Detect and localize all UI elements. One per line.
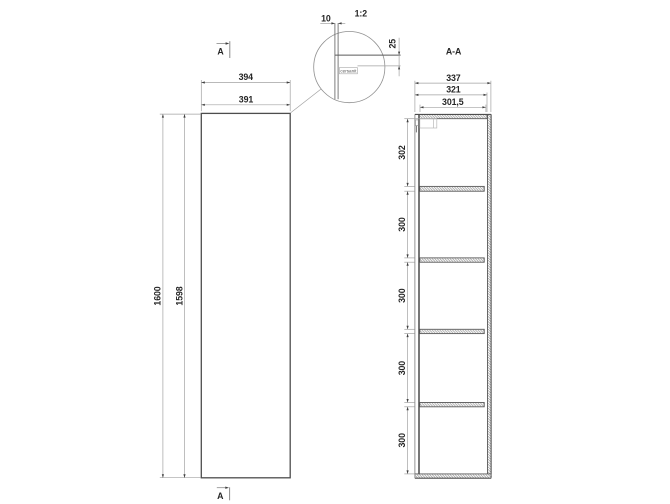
svg-text:321: 321 [446,85,461,95]
svg-text:300: 300 [397,288,407,303]
svg-text:25: 25 [388,39,398,49]
svg-text:A-A: A-A [446,47,462,57]
svg-text:1:2: 1:2 [355,9,368,19]
svg-text:1600: 1600 [153,286,163,305]
svg-text:A: A [217,491,224,501]
svg-text:391: 391 [239,95,254,105]
svg-text:300: 300 [397,361,407,376]
svg-text:394: 394 [239,72,254,82]
svg-text:301,5: 301,5 [442,97,464,107]
svg-text:cersanit: cersanit [340,68,357,73]
svg-text:A: A [217,47,224,57]
svg-text:1598: 1598 [174,286,184,305]
svg-text:10: 10 [321,14,331,24]
svg-text:337: 337 [446,73,461,83]
svg-text:302: 302 [397,145,407,160]
svg-text:300: 300 [397,217,407,232]
svg-text:300: 300 [397,433,407,448]
